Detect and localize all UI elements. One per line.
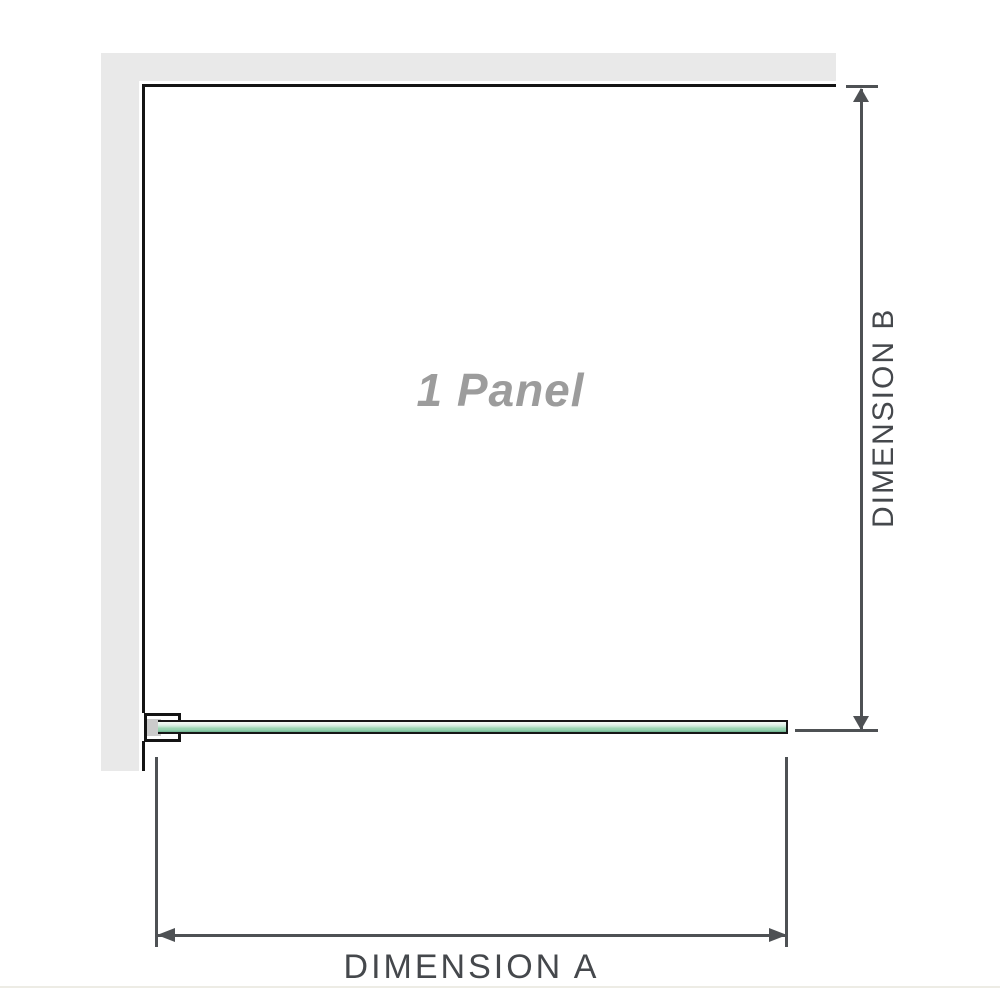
glass-panel [158, 720, 788, 734]
panel-area: 1 Panel [145, 87, 836, 721]
dimension-b-arrow-up-icon [853, 88, 869, 102]
dimension-a-line [158, 934, 786, 937]
dimension-a-arrow-right-icon [769, 928, 787, 942]
shower-panel-dimension-diagram: 1 Panel DIMENSION B DIMENSION A [0, 0, 1000, 1000]
dimension-a-arrow-left-icon [157, 928, 175, 942]
panel-label: 1 Panel [416, 363, 584, 417]
wall-top-bar [101, 53, 836, 81]
dimension-a-extension-right [785, 757, 788, 947]
dimension-a-label: DIMENSION A [157, 948, 786, 987]
wall-left-bar [101, 53, 139, 771]
dimension-b-arrow-down-icon [853, 716, 869, 730]
dimension-a-extension-left [155, 757, 158, 947]
dimension-b-label: DIMENSION B [864, 300, 904, 536]
bottom-divider [0, 986, 1000, 988]
dimension-b-line [860, 89, 863, 730]
panel-outline-left-lower [142, 741, 145, 771]
